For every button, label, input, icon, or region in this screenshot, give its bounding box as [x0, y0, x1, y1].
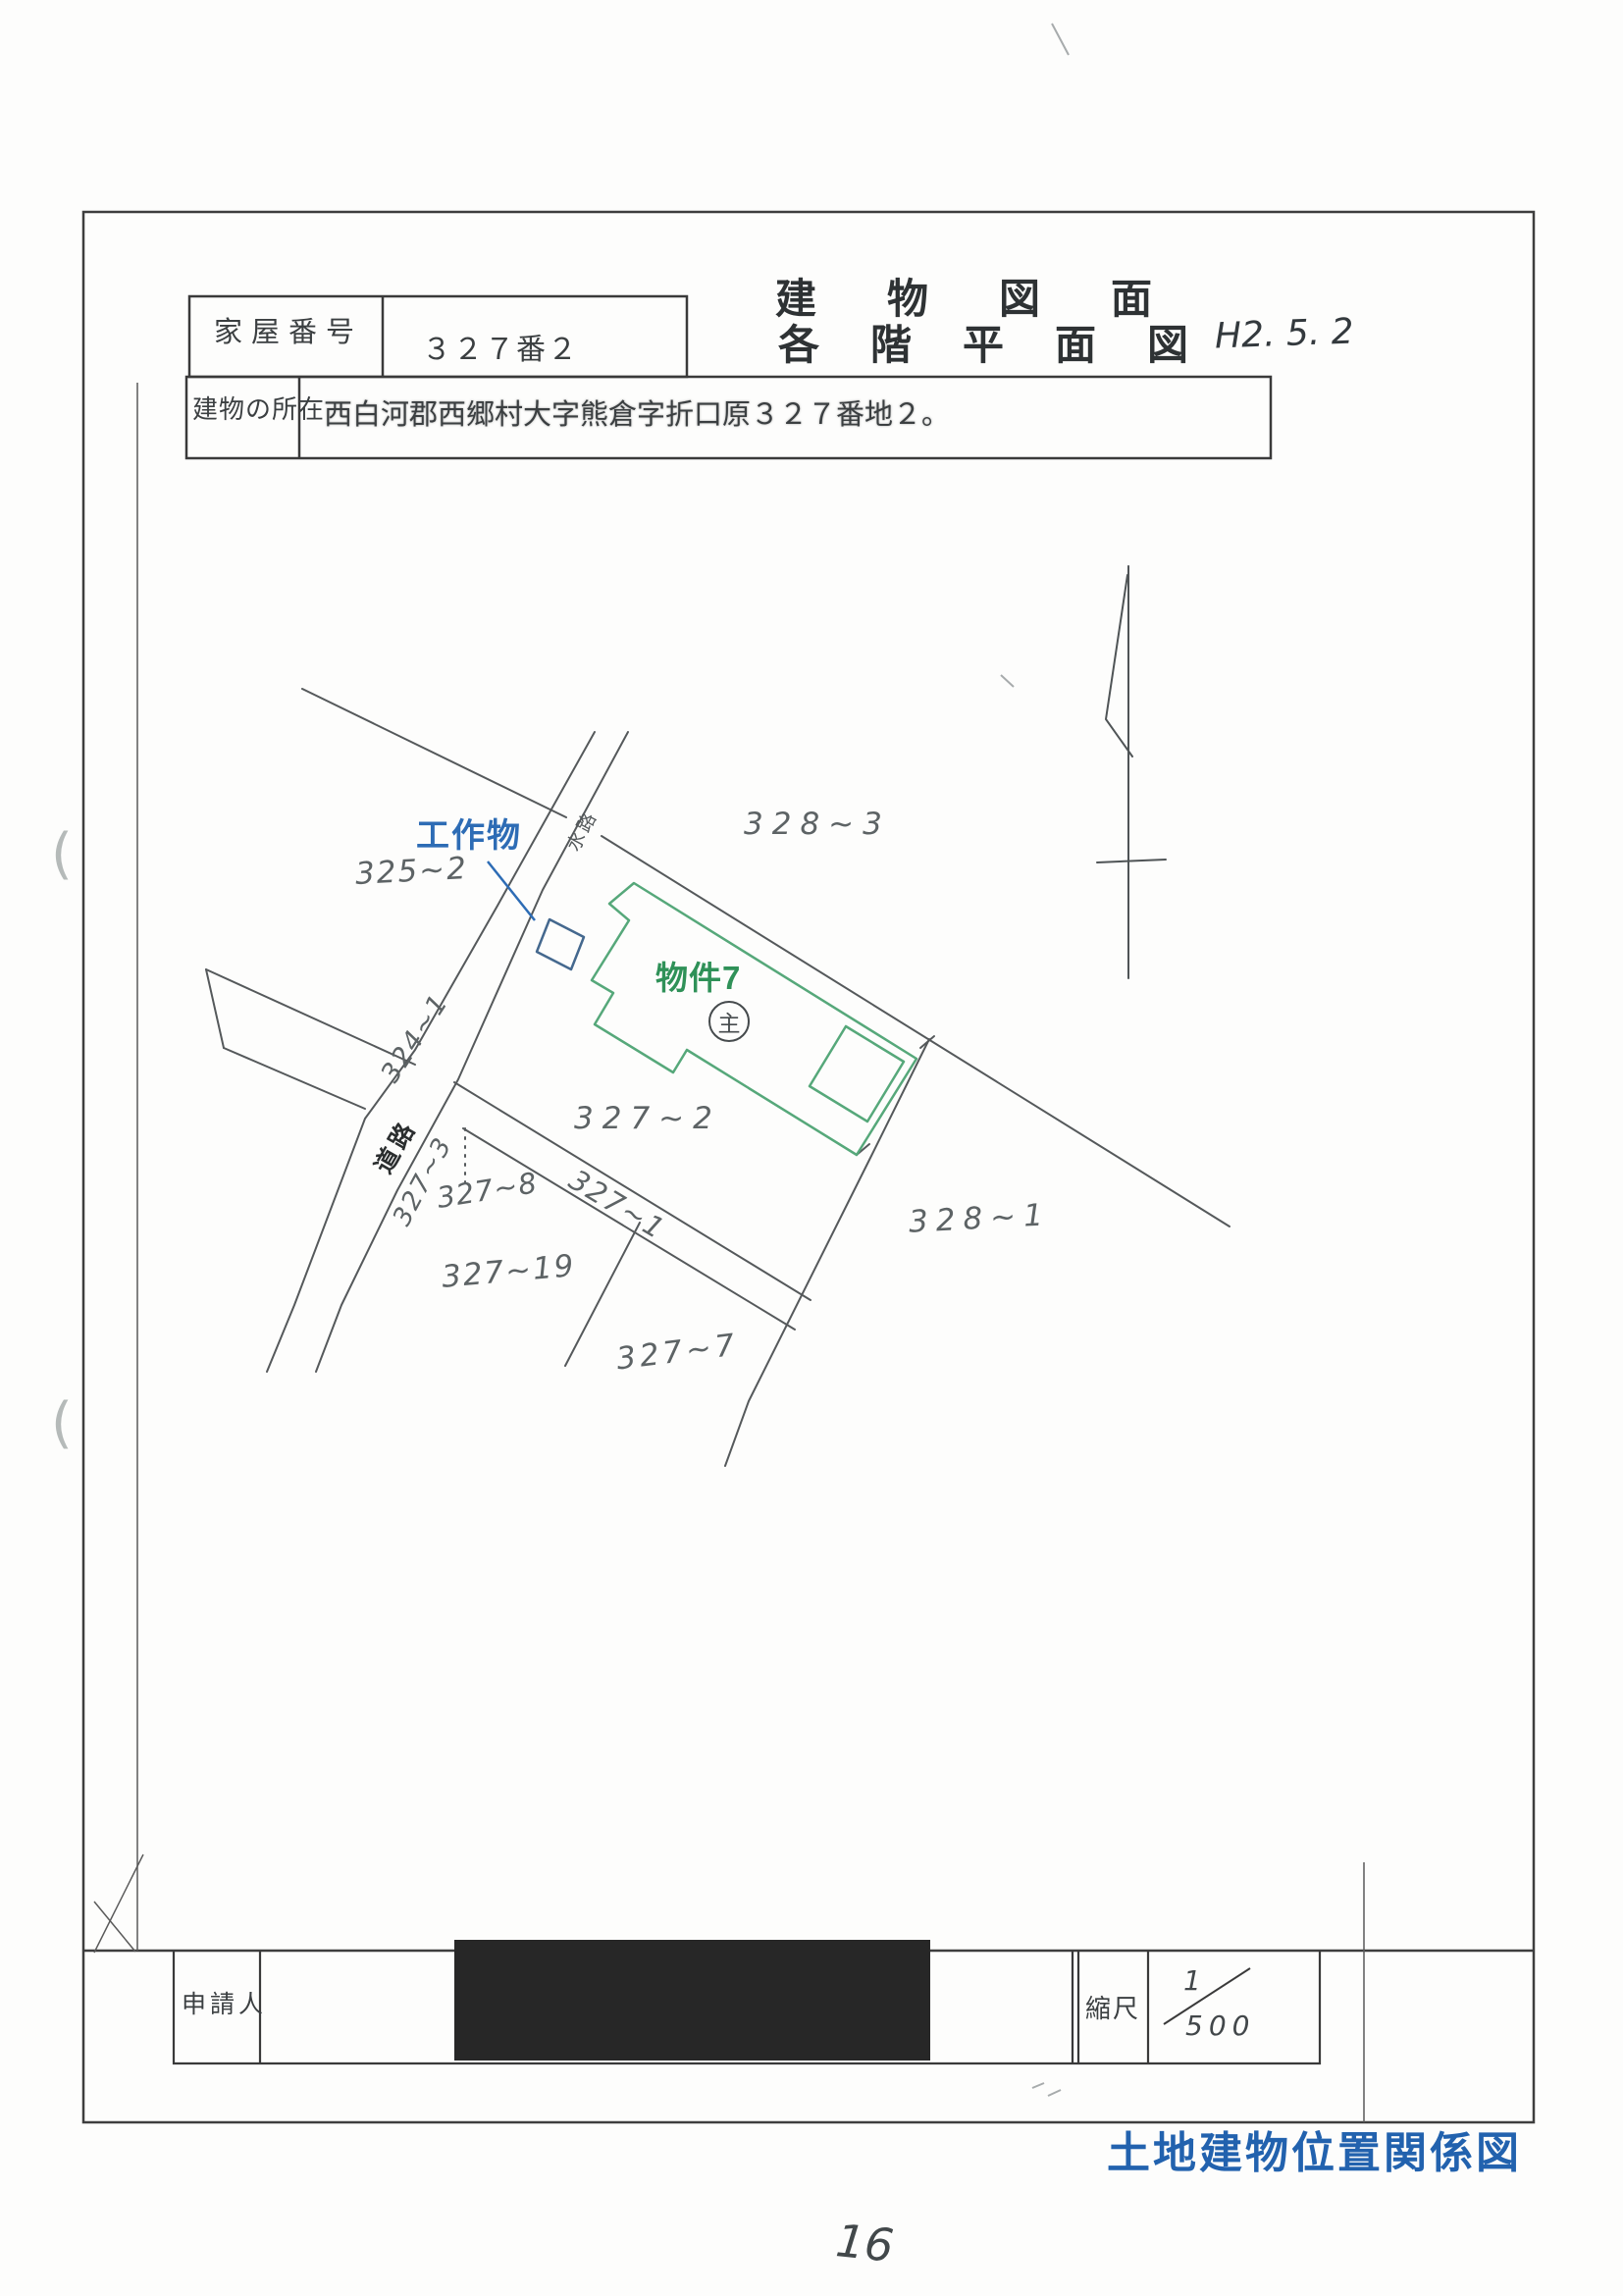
structure-outline-blue [488, 861, 584, 969]
punch-mark-icon: ( [51, 822, 73, 886]
scale-numerator: 1 [1183, 1966, 1201, 1995]
location-label: 建物の所在 [192, 396, 325, 423]
redaction-box [454, 1940, 930, 2061]
map-type-caption: 土地建物位置関係図 [1107, 2131, 1522, 2176]
parcel-label-328-1: 328~1 [908, 1199, 1051, 1238]
location-value: 西白河郡西郷村大字熊倉字折口原３２７番地２。 [324, 400, 950, 430]
building-circle-mark: 主 [708, 1001, 750, 1042]
parcel-label-327-2: 327~2 [574, 1103, 721, 1135]
punch-mark-icon: ( [51, 1391, 73, 1455]
building-annotation: 物件7 [655, 962, 741, 996]
house-number-label: 家屋番号 [214, 318, 363, 347]
page-number: 16 [834, 2217, 896, 2270]
page-frame [83, 212, 1534, 2122]
scale-denominator: 500 [1185, 2011, 1255, 2040]
north-arrow [1097, 566, 1166, 978]
applicant-label: 申請人 [182, 1992, 267, 2017]
structure-annotation: 工作物 [416, 819, 522, 855]
handwritten-date: H2. 5. 2 [1214, 314, 1354, 356]
document-title-line2: 各階平面図 [778, 324, 1239, 367]
scanned-building-drawing: ( ( 家屋番号 ３２７番２ 建物の所在 西白河郡西郷村大字熊倉字折口原３２７番… [0, 0, 1623, 2296]
building-circle-mark-text: 主 [718, 1005, 741, 1038]
margin-lines [94, 383, 1364, 2122]
scale-label: 縮尺 [1085, 1996, 1140, 2022]
parcel-label-325-2: 325~2 [354, 853, 468, 891]
document-title-line1: 建物図面 [775, 278, 1223, 321]
parcel-label-328-3: 328~3 [744, 809, 891, 841]
house-number-value: ３２７番２ [422, 335, 579, 366]
